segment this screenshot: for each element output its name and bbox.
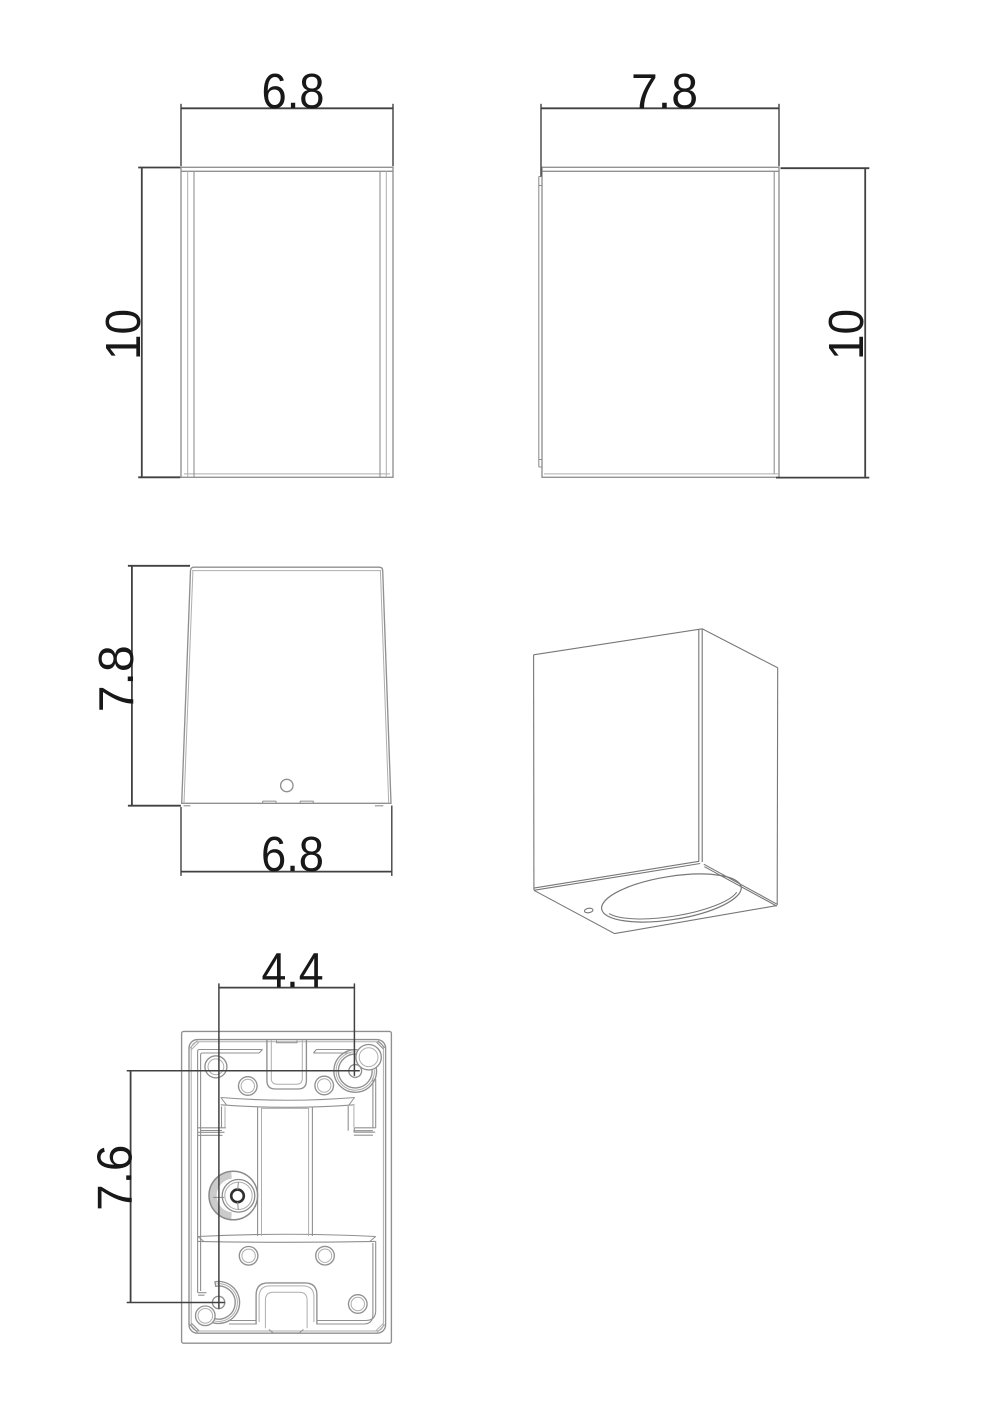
svg-text:4.4: 4.4	[262, 944, 324, 998]
svg-text:10: 10	[820, 309, 874, 360]
svg-text:7.8: 7.8	[631, 65, 698, 119]
svg-text:6.8: 6.8	[262, 65, 325, 119]
svg-text:7.6: 7.6	[89, 1145, 143, 1211]
svg-text:10: 10	[97, 309, 151, 360]
svg-text:6.8: 6.8	[261, 828, 324, 882]
svg-text:7.8: 7.8	[90, 645, 144, 712]
